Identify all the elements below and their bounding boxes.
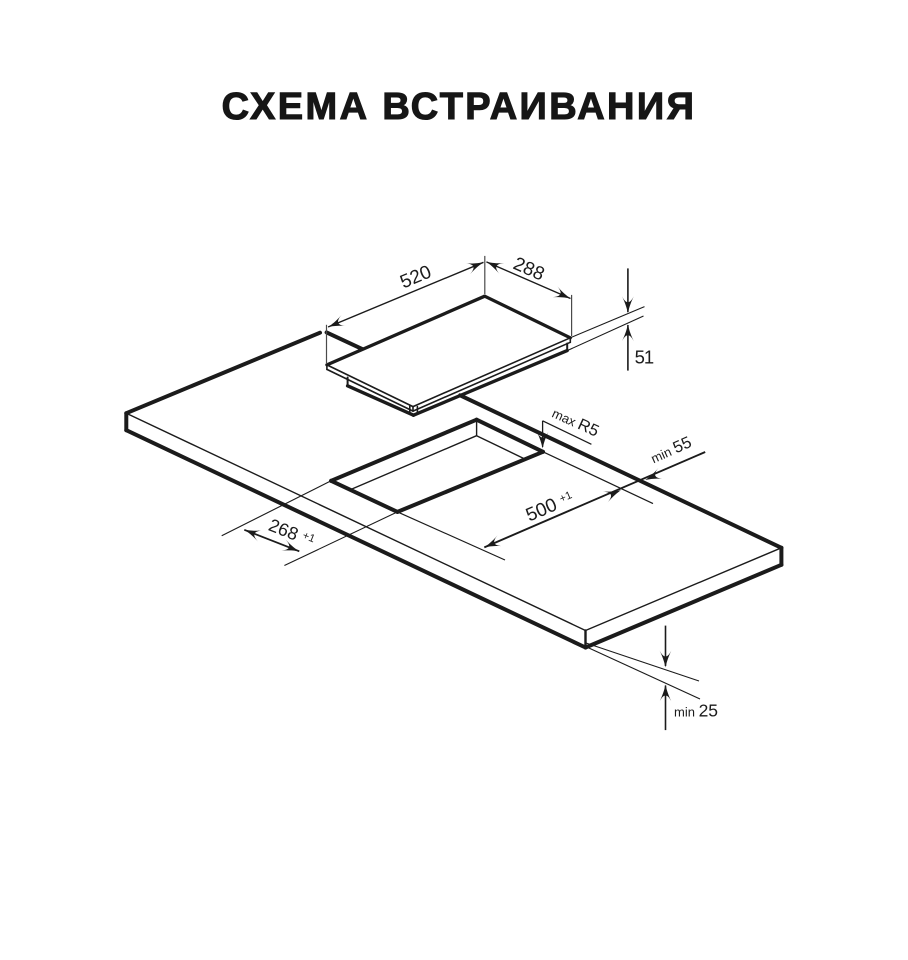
- svg-text:max R5: max R5: [549, 404, 601, 441]
- svg-text:288: 288: [510, 254, 547, 286]
- svg-text:min 25: min 25: [674, 701, 718, 721]
- svg-text:520: 520: [397, 262, 434, 294]
- svg-text:500 +1: 500 +1: [523, 488, 577, 527]
- svg-text:min 55: min 55: [648, 433, 695, 467]
- svg-text:51: 51: [635, 347, 654, 368]
